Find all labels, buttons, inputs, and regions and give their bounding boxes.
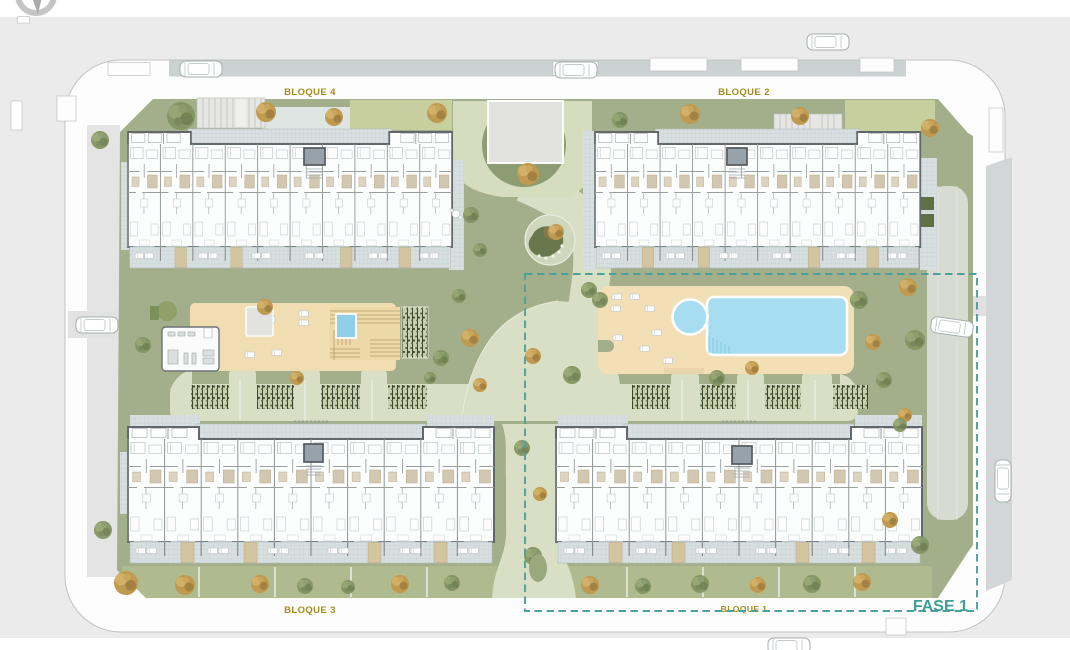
svg-text:BLOQUE 4: BLOQUE 4 [284,87,336,98]
svg-text:BLOQUE 3: BLOQUE 3 [284,605,336,616]
svg-text:BLOQUE 2: BLOQUE 2 [718,87,770,98]
svg-text:FASE 1: FASE 1 [913,598,968,615]
svg-text:BLOQUE 1: BLOQUE 1 [721,604,768,614]
